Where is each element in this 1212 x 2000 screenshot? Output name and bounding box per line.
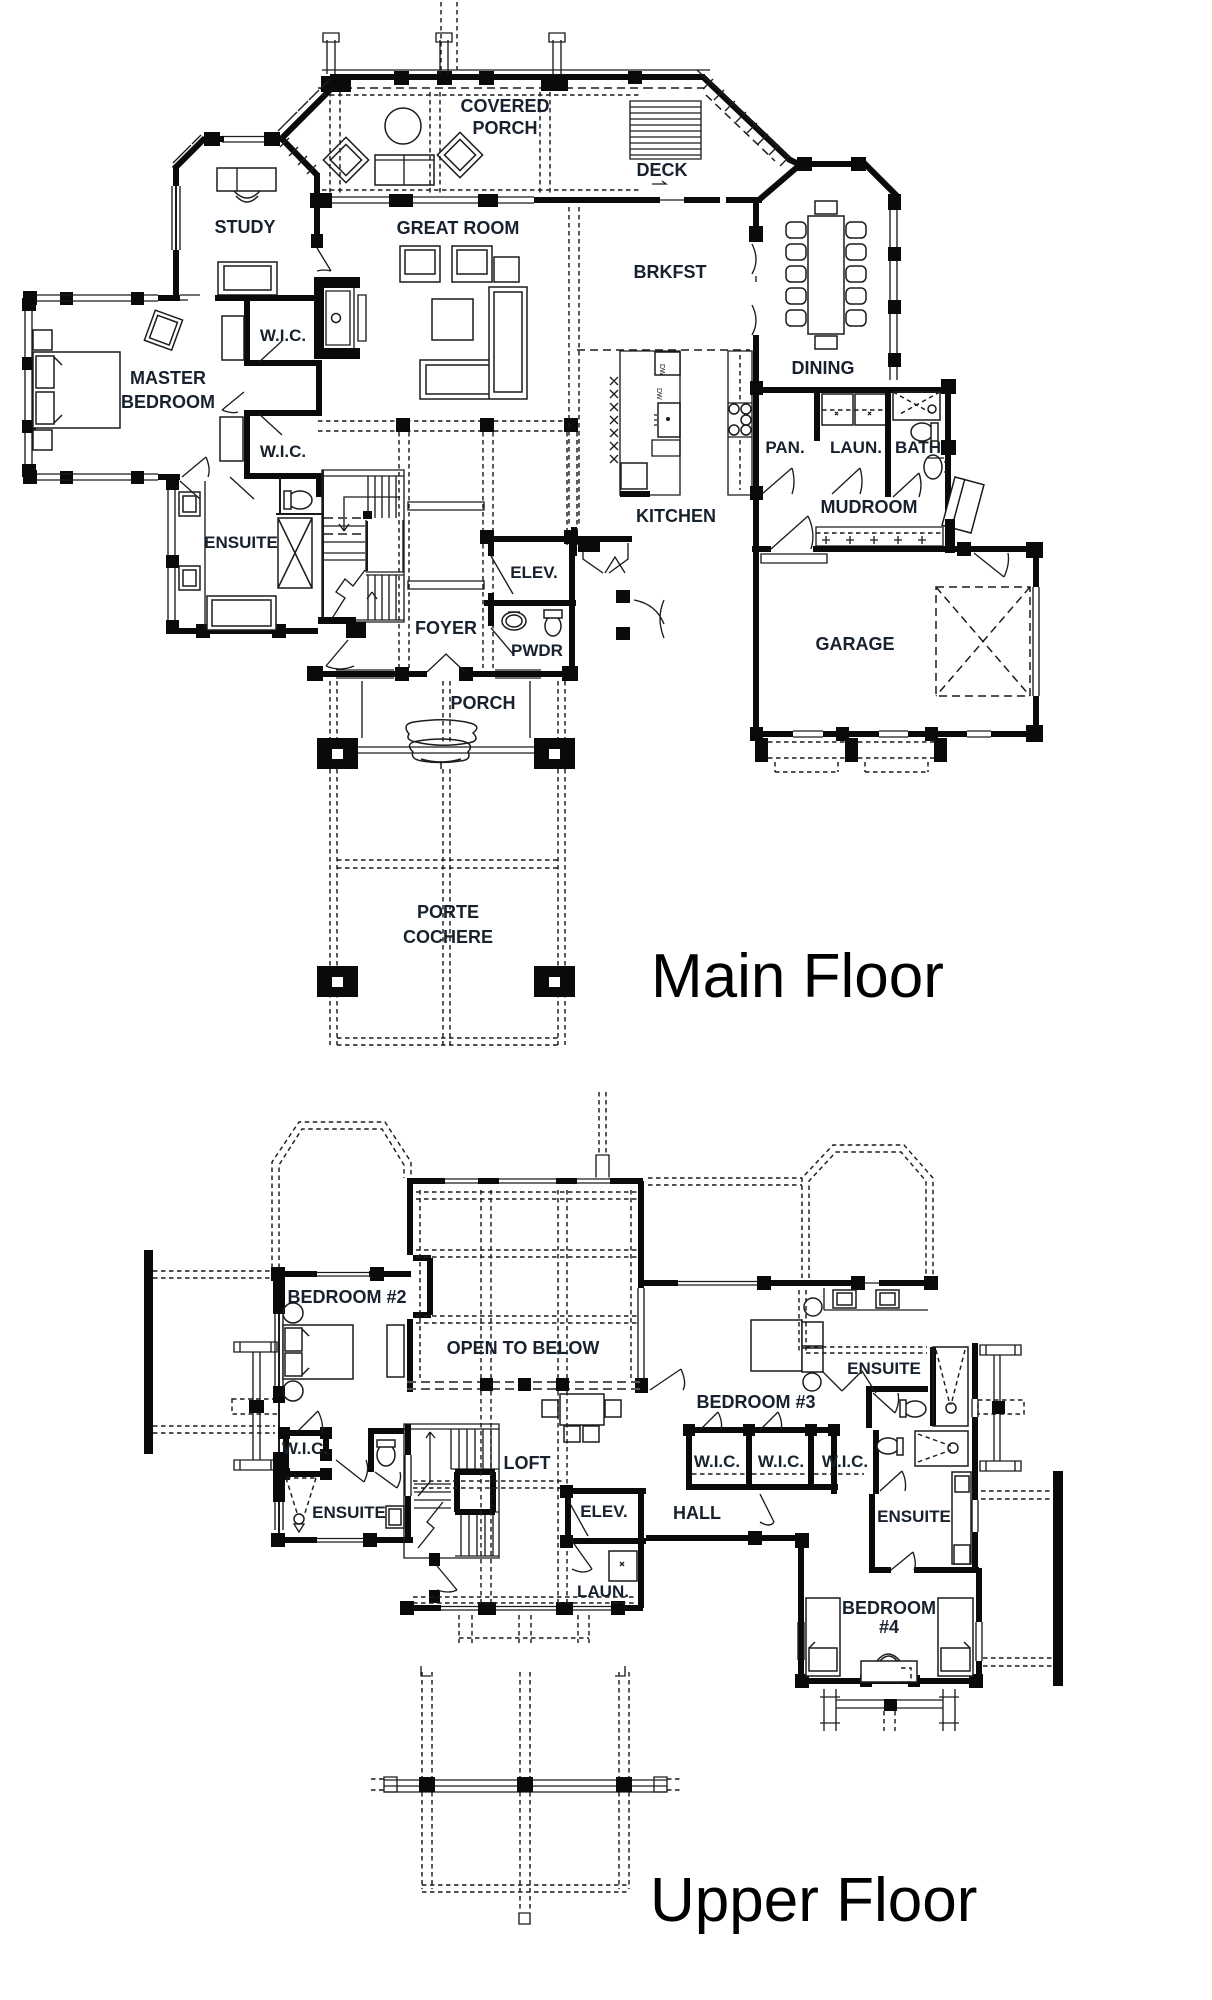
- svg-text:DW: DW: [658, 364, 665, 376]
- svg-text:MASTER: MASTER: [130, 368, 206, 388]
- svg-text:ENSUITE: ENSUITE: [312, 1503, 386, 1522]
- svg-text:ENSUITE: ENSUITE: [877, 1507, 951, 1526]
- svg-text:PORCH: PORCH: [472, 118, 537, 138]
- svg-text:LAUN.: LAUN.: [577, 1582, 629, 1601]
- svg-text:STUDY: STUDY: [214, 217, 275, 237]
- svg-text:PAN.: PAN.: [765, 438, 804, 457]
- svg-text:COCHERE: COCHERE: [403, 927, 493, 947]
- svg-text:COVERED: COVERED: [460, 96, 549, 116]
- svg-text:BRKFST: BRKFST: [634, 262, 707, 282]
- svg-text:W.I.C.: W.I.C.: [758, 1452, 804, 1471]
- svg-text:GREAT ROOM: GREAT ROOM: [397, 218, 520, 238]
- svg-text:W.I.C.: W.I.C.: [260, 442, 306, 461]
- svg-text:W.I.C.: W.I.C.: [282, 1439, 328, 1458]
- svg-text:PORTE: PORTE: [417, 902, 479, 922]
- svg-text:KITCHEN: KITCHEN: [636, 506, 716, 526]
- svg-text:DINING: DINING: [792, 358, 855, 378]
- svg-text:OPEN TO BELOW: OPEN TO BELOW: [447, 1338, 600, 1358]
- svg-text:DW: DW: [655, 388, 662, 400]
- svg-text:BEDROOM #3: BEDROOM #3: [696, 1392, 815, 1412]
- svg-text:ELEV.: ELEV.: [580, 1502, 628, 1521]
- svg-text:#4: #4: [879, 1617, 899, 1637]
- svg-text:Upper Floor: Upper Floor: [650, 1866, 977, 1935]
- svg-text:GARAGE: GARAGE: [815, 634, 894, 654]
- svg-text:BEDROOM #2: BEDROOM #2: [287, 1287, 406, 1307]
- svg-text:W.I.C.: W.I.C.: [694, 1452, 740, 1471]
- svg-text:Main Floor: Main Floor: [651, 942, 944, 1011]
- svg-text:BEDROOM: BEDROOM: [121, 392, 215, 412]
- svg-text:HALL: HALL: [673, 1503, 721, 1523]
- svg-text:W.I.C.: W.I.C.: [822, 1452, 868, 1471]
- svg-text:W.I.C.: W.I.C.: [260, 326, 306, 345]
- svg-text:FOYER: FOYER: [415, 618, 477, 638]
- svg-text:DECK: DECK: [636, 160, 687, 180]
- svg-text:LAUN.: LAUN.: [830, 438, 882, 457]
- svg-text:MUDROOM: MUDROOM: [821, 497, 918, 517]
- svg-text:LOFT: LOFT: [504, 1453, 551, 1473]
- svg-text:ELEV.: ELEV.: [510, 563, 558, 582]
- svg-text:BEDROOM: BEDROOM: [842, 1598, 936, 1618]
- svg-text:ENSUITE: ENSUITE: [204, 533, 278, 552]
- svg-text:PORCH: PORCH: [450, 693, 515, 713]
- svg-text:PWDR: PWDR: [511, 641, 563, 660]
